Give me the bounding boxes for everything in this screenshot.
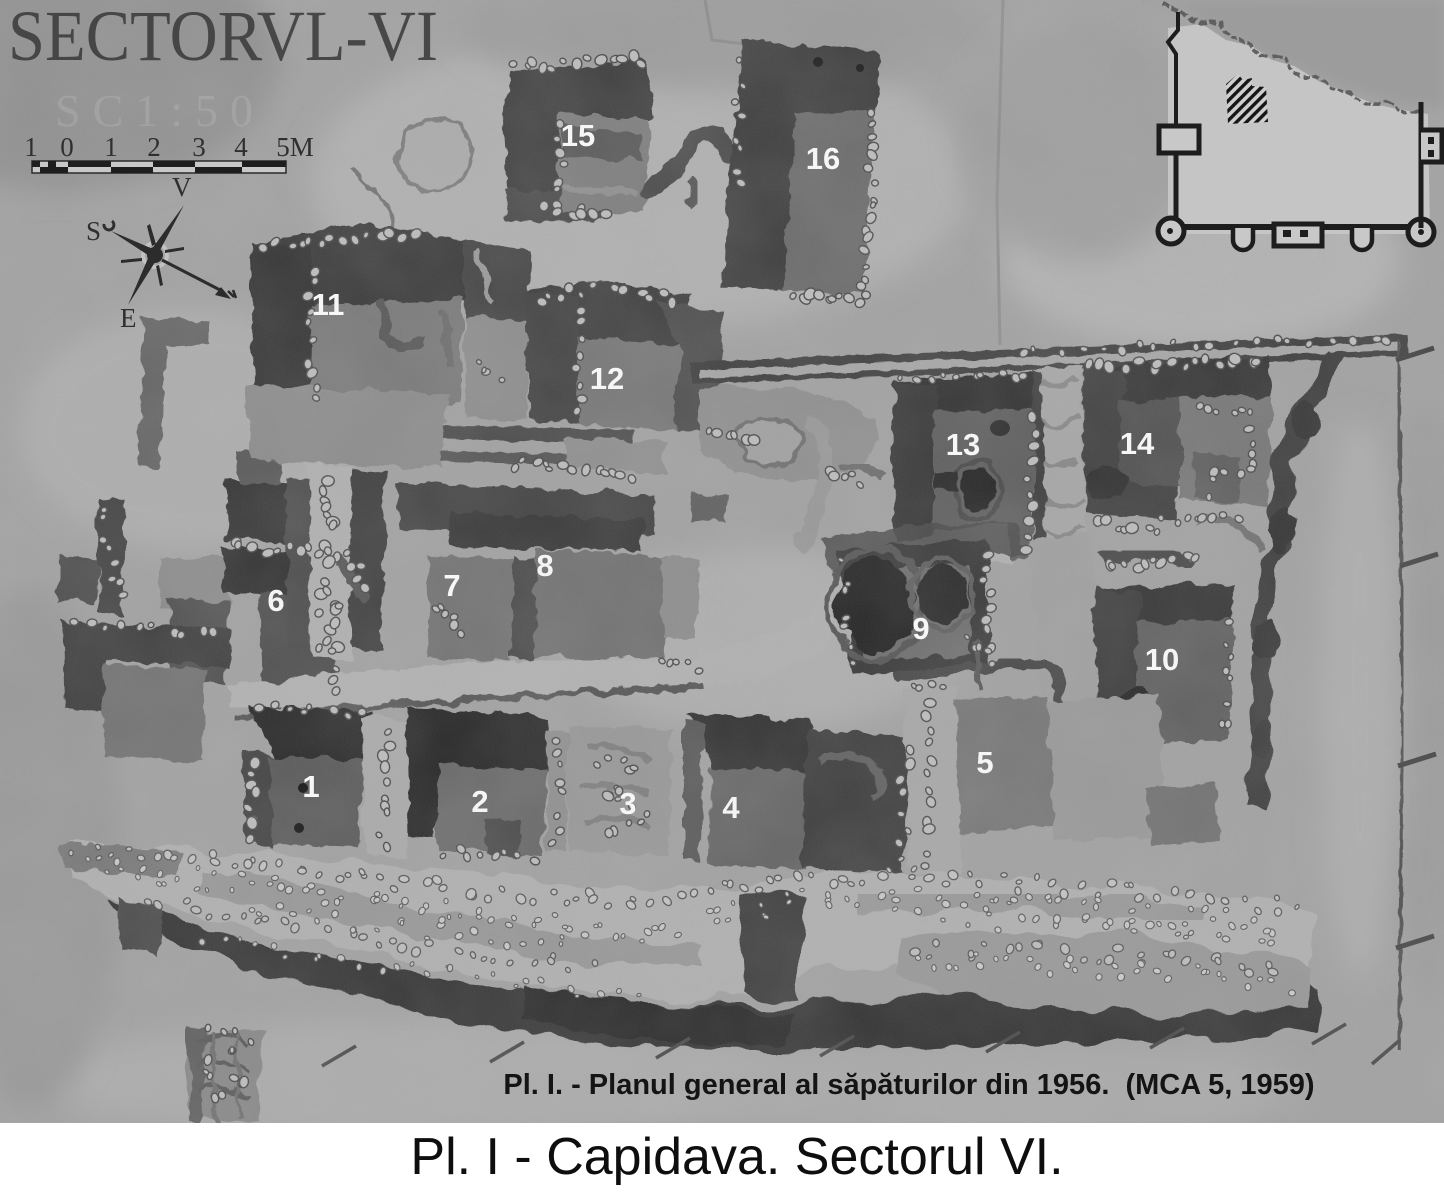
svg-text:3: 3 bbox=[192, 132, 206, 162]
svg-text:Pl. I. - Planul general al săp: Pl. I. - Planul general al săpăturilor d… bbox=[503, 1069, 1314, 1101]
svg-text:V: V bbox=[172, 172, 192, 202]
svg-text:5M: 5M bbox=[276, 132, 314, 162]
svg-text:0: 0 bbox=[60, 132, 74, 162]
svg-text:E: E bbox=[120, 303, 137, 333]
svg-text:4: 4 bbox=[234, 132, 248, 162]
svg-text:2: 2 bbox=[147, 132, 161, 162]
svg-text:Pl. I - Capidava. Sectorul VI.: Pl. I - Capidava. Sectorul VI. bbox=[410, 1128, 1063, 1186]
svg-text:1: 1 bbox=[104, 132, 118, 162]
svg-text:SC1:50: SC1:50 bbox=[55, 85, 265, 136]
svg-text:S: S bbox=[86, 216, 101, 246]
svg-text:SECTORVL-VI: SECTORVL-VI bbox=[8, 0, 438, 76]
svg-text:1: 1 bbox=[24, 132, 38, 162]
